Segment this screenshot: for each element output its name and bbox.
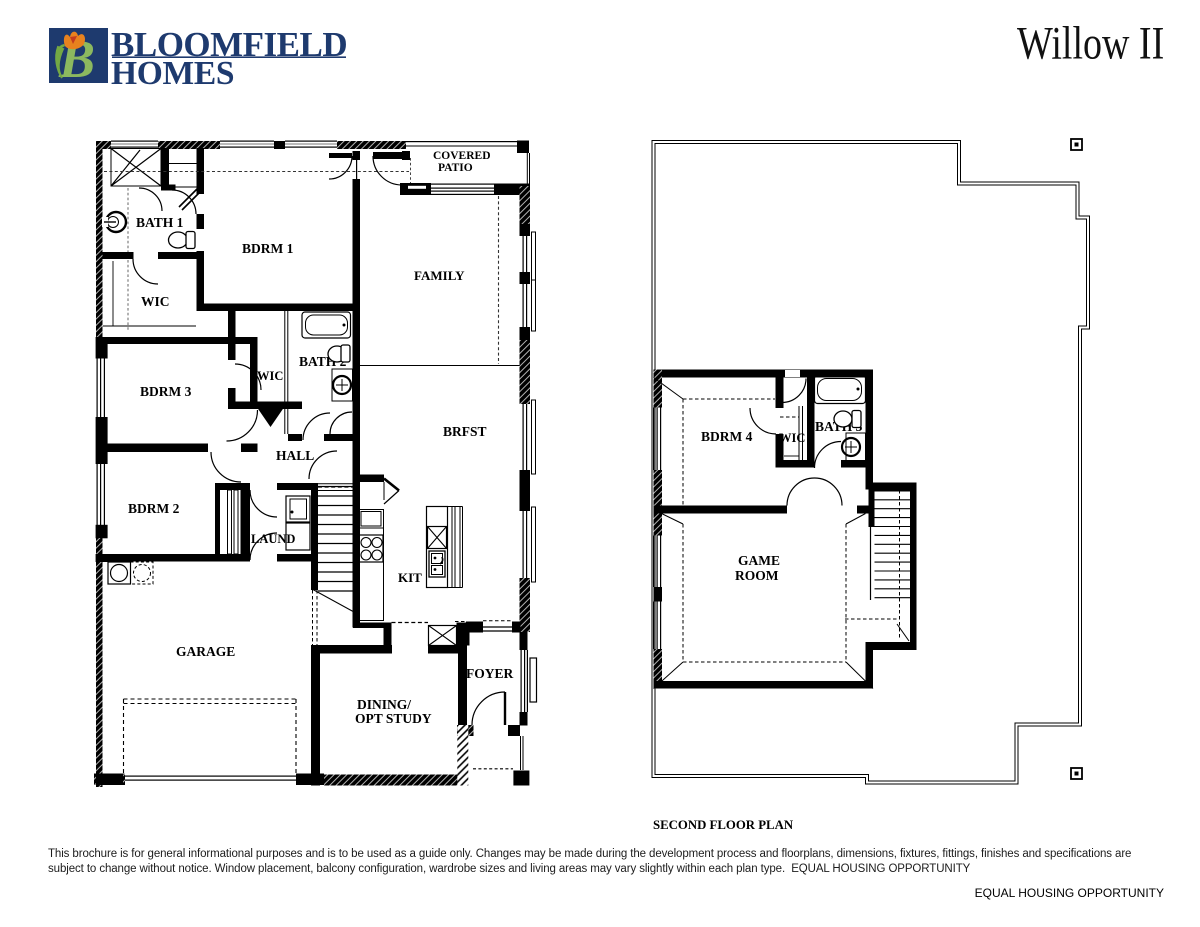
svg-text:HOMES: HOMES <box>111 55 234 92</box>
svg-text:BDRM 2: BDRM 2 <box>128 501 180 516</box>
svg-text:BRFST: BRFST <box>443 424 487 439</box>
svg-text:FAMILY: FAMILY <box>414 268 465 283</box>
svg-text:WIC: WIC <box>257 369 283 383</box>
svg-text:BDRM 4: BDRM 4 <box>701 429 753 444</box>
svg-text:BDRM 1: BDRM 1 <box>242 241 294 256</box>
svg-text:DINING/: DINING/ <box>357 697 411 712</box>
svg-text:BATH 1: BATH 1 <box>136 215 184 230</box>
svg-text:WIC: WIC <box>141 294 170 309</box>
svg-text:ROOM: ROOM <box>735 568 779 583</box>
svg-text:KIT: KIT <box>398 570 422 585</box>
svg-text:Willow II: Willow II <box>1017 18 1164 69</box>
svg-text:PATIO: PATIO <box>438 162 473 174</box>
svg-text:OPT STUDY: OPT STUDY <box>355 711 432 726</box>
svg-text:HALL: HALL <box>276 448 314 463</box>
svg-text:WIC: WIC <box>779 431 805 445</box>
svg-text:SECOND FLOOR PLAN: SECOND FLOOR PLAN <box>653 818 794 832</box>
svg-text:GARAGE: GARAGE <box>176 644 235 659</box>
svg-text:GAME: GAME <box>738 553 780 568</box>
svg-text:LAUND: LAUND <box>251 532 295 546</box>
svg-text:COVERED: COVERED <box>433 150 491 162</box>
svg-text:BDRM 3: BDRM 3 <box>140 384 192 399</box>
svg-text:FOYER: FOYER <box>466 666 514 681</box>
